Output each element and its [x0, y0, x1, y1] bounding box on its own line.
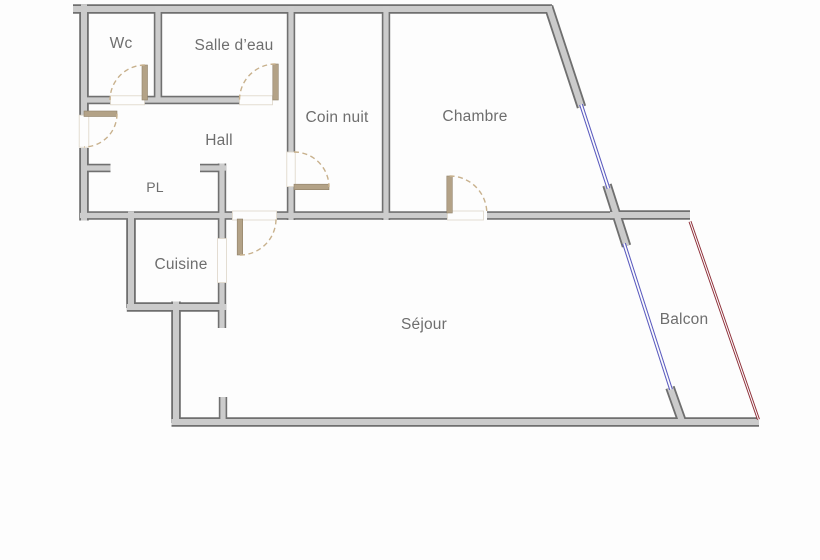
room-label-salle-deau: Salle d’eau — [195, 37, 274, 54]
room-label-hall: Hall — [205, 132, 233, 149]
room-label-wc: Wc — [110, 35, 133, 52]
room-label-sejour: Séjour — [401, 316, 447, 333]
coin-nuit-door-leaf — [294, 184, 329, 190]
sejour-door-arc — [240, 219, 276, 255]
chambre-window-glass — [581, 105, 609, 189]
chambre-door-opening — [448, 211, 484, 220]
entrance-door-leaf — [84, 111, 117, 117]
chambre-door-arc — [450, 176, 487, 213]
room-labels: Wc Salle d’eau Coin nuit Chambre Hall PL… — [110, 35, 709, 333]
room-label-cuisine: Cuisine — [154, 256, 207, 273]
room-label-chambre: Chambre — [442, 108, 507, 125]
salle-deau-door-opening — [240, 96, 273, 105]
wc-door-leaf — [142, 65, 148, 100]
salle-deau-door-leaf — [273, 64, 279, 100]
entrance-door-opening — [79, 115, 89, 147]
room-label-pl: PL — [146, 179, 164, 195]
door-openings — [79, 96, 483, 283]
coin-nuit-door-opening — [287, 152, 295, 187]
doors — [84, 64, 452, 255]
windows — [581, 105, 671, 390]
chambre-door-leaf — [447, 176, 453, 213]
wc-door-opening — [111, 96, 145, 105]
room-label-coin-nuit: Coin nuit — [306, 109, 369, 126]
coin-nuit-door-arc — [294, 152, 329, 187]
sejour-door-opening — [233, 211, 277, 220]
floor-plan-image: Wc Salle d’eau Coin nuit Chambre Hall PL… — [0, 0, 820, 560]
sejour-door-leaf — [237, 219, 243, 255]
wc-door-arc — [110, 65, 145, 100]
floor-plan-svg: Wc Salle d’eau Coin nuit Chambre Hall PL… — [0, 0, 820, 560]
walls-inner-fill — [80, 6, 614, 420]
salle-deau-door-arc — [240, 64, 276, 100]
room-label-balcon: Balcon — [660, 311, 709, 328]
cuisine-passage-opening — [218, 239, 227, 283]
inner-wall-fill-path — [80, 6, 614, 420]
